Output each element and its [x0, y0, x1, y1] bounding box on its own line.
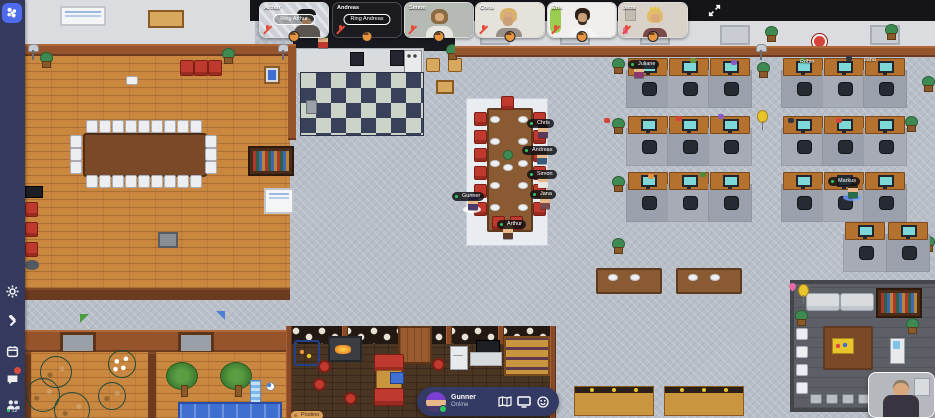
bunting — [680, 388, 684, 392]
office-chair — [724, 82, 739, 96]
self-name: Gunner — [451, 394, 493, 402]
video-tile-arthur[interactable]: Arthur Ring Arthur — [259, 2, 329, 38]
wall — [455, 46, 935, 57]
desk-monitor — [723, 175, 739, 187]
expand-call-view-icon[interactable] — [708, 4, 721, 17]
potted-plant — [612, 118, 624, 134]
person-face — [651, 14, 660, 22]
fireplace — [328, 336, 362, 362]
screenshare-icon[interactable] — [516, 395, 531, 409]
sofa — [806, 293, 840, 311]
fridge — [450, 346, 468, 370]
participant-name: Arthur — [264, 5, 281, 11]
build-hammer-icon[interactable] — [0, 310, 25, 332]
potted-plant — [40, 52, 52, 68]
stool — [826, 394, 838, 404]
desk-item — [648, 174, 654, 179]
meeting-chair — [474, 112, 487, 126]
office-chair — [724, 140, 739, 154]
direction-arrow — [80, 314, 89, 323]
office-chair — [642, 140, 657, 154]
office-chair — [683, 82, 698, 96]
whiteboard — [60, 6, 106, 26]
trash-can — [306, 100, 317, 114]
potted-plant — [612, 238, 624, 254]
conference-chair — [99, 175, 111, 188]
meeting-chair — [474, 130, 487, 144]
office-chair — [797, 196, 812, 210]
desk-monitor — [878, 119, 894, 131]
plate — [503, 164, 513, 171]
pixel-avatar-badge — [577, 31, 588, 42]
lounge-chair — [448, 58, 462, 72]
participant-name: Jana — [623, 5, 636, 11]
video-call-bar: Arthur Ring Arthur Andreas Ring Andreas … — [250, 0, 935, 40]
plate — [518, 138, 528, 145]
plate — [490, 138, 500, 145]
desk-monitor — [901, 225, 917, 237]
desk-monitor — [878, 61, 894, 73]
balloon — [757, 110, 768, 123]
bunting — [634, 388, 638, 392]
desk-monitor — [796, 175, 812, 187]
balloon — [798, 284, 809, 297]
bookshelf — [248, 146, 294, 176]
pixel-avatar-badge — [434, 31, 445, 42]
stool — [810, 394, 822, 404]
office-chair — [879, 140, 894, 154]
player-nametag: Juliane — [628, 60, 659, 69]
player-nametag: Andreas — [522, 146, 557, 155]
conference-chair — [205, 135, 217, 148]
mic-muted-icon — [408, 25, 417, 34]
booth-seat — [374, 388, 404, 406]
red-chair — [25, 202, 38, 217]
calendar-icon[interactable] — [0, 340, 25, 362]
plate — [630, 274, 640, 281]
conference-chair — [190, 120, 202, 133]
video-tile-erik[interactable]: Erik — [547, 2, 617, 38]
chair — [796, 346, 808, 358]
conference-chair — [164, 175, 176, 188]
bunting — [612, 388, 616, 392]
bunting — [702, 388, 706, 392]
desk-item — [700, 172, 706, 177]
plate — [710, 274, 720, 281]
office-chair — [859, 246, 874, 260]
conference-chair — [112, 175, 124, 188]
stove — [404, 50, 422, 74]
side-table — [436, 80, 454, 94]
gather-logo-icon — [4, 5, 20, 21]
projector — [158, 232, 178, 248]
wall-post — [286, 326, 292, 418]
bunting — [590, 388, 594, 392]
avatar-markus[interactable] — [848, 184, 858, 198]
online-dot — [7, 409, 10, 412]
board-game[interactable] — [832, 338, 854, 354]
table — [596, 268, 662, 294]
person-face — [435, 13, 444, 21]
floor-lamp — [756, 44, 766, 60]
chair — [796, 364, 808, 376]
direction-arrow — [216, 311, 225, 320]
desk-monitor — [682, 61, 698, 73]
mic-muted-icon — [551, 25, 560, 34]
conference-chair — [205, 148, 217, 161]
wall-shelf — [148, 10, 184, 28]
participant-name: Erik — [552, 5, 562, 11]
bar-stool — [432, 358, 445, 371]
kitchen-checkered-floor — [300, 72, 424, 136]
bar-stool — [344, 392, 357, 405]
player-nametag: Chris — [527, 119, 554, 128]
room-window — [914, 378, 930, 396]
conference-chair — [164, 120, 176, 133]
wall — [148, 352, 156, 418]
conference-chair — [125, 120, 137, 133]
meeting-chair — [474, 166, 487, 180]
emote-smiley-icon[interactable] — [535, 395, 550, 409]
tv-screen — [25, 186, 43, 198]
left-sidebar: 12 — [0, 0, 25, 418]
window — [60, 332, 96, 354]
desk-item — [690, 58, 696, 63]
plate — [688, 274, 698, 281]
conference-chair — [70, 135, 82, 148]
pixel-avatar-badge — [289, 31, 300, 42]
floor-lamp — [278, 44, 288, 60]
location-tag: Postino — [291, 411, 323, 418]
conference-chair — [125, 175, 137, 188]
office-chair — [797, 140, 812, 154]
tree — [98, 382, 126, 410]
office-chair — [642, 196, 657, 210]
desk-item — [604, 118, 610, 123]
person-body — [883, 395, 919, 417]
mic-muted-icon — [336, 25, 345, 34]
potted-plant — [922, 76, 934, 92]
red-chair — [180, 60, 194, 76]
desk-item — [846, 56, 852, 61]
conference-chair — [138, 120, 150, 133]
pixel-avatar-badge — [505, 31, 516, 42]
floor-lamp — [28, 44, 38, 60]
self-identity[interactable]: Gunner Online — [451, 394, 493, 408]
meeting-chair — [474, 148, 487, 162]
water-cooler — [890, 338, 905, 364]
minimap-icon[interactable] — [497, 395, 512, 409]
conference-chair — [86, 120, 98, 133]
player-nametag: Markus — [828, 177, 860, 186]
blue-chest — [390, 372, 404, 384]
chat-notification-badge — [13, 366, 22, 375]
desk-monitor — [682, 119, 698, 131]
person-hand — [503, 17, 513, 26]
office-map[interactable]: Chris Andreas Simon Jana Gunner Arthur J… — [0, 0, 935, 418]
plate — [490, 204, 500, 211]
player-nametag: Gunner — [452, 192, 484, 201]
office-chair — [838, 82, 853, 96]
potted-plant — [757, 62, 769, 78]
video-tile-chris[interactable]: Chris — [475, 2, 545, 38]
ring-andreas-button[interactable]: Ring Andreas — [343, 14, 390, 25]
red-chair — [194, 60, 208, 76]
desk-item — [836, 118, 842, 123]
red-chair — [208, 60, 222, 76]
wall — [25, 44, 290, 56]
chair — [796, 382, 808, 394]
office-chair — [879, 82, 894, 96]
conference-chair — [151, 120, 163, 133]
sofa — [840, 293, 874, 311]
desk-monitor — [878, 175, 894, 187]
participant-name: Simon — [409, 5, 426, 11]
self-avatar[interactable] — [426, 392, 446, 412]
pixel-avatar-badge — [648, 31, 659, 42]
conference-chair — [177, 175, 189, 188]
conference-chair — [205, 161, 217, 174]
video-tile-simon[interactable]: Simon — [404, 2, 474, 38]
conference-chair — [99, 120, 111, 133]
wall — [25, 288, 290, 300]
table — [676, 268, 742, 294]
stool — [842, 394, 854, 404]
desk-item — [731, 60, 737, 65]
office-chair — [683, 196, 698, 210]
office-chair — [879, 196, 894, 210]
person-face — [578, 13, 587, 22]
self-video-preview[interactable] — [868, 372, 935, 418]
player-nametag: Jana — [530, 190, 556, 199]
table-plant — [503, 150, 513, 160]
conference-chair — [190, 175, 202, 188]
potted-plant — [612, 176, 624, 192]
bar-stool — [318, 360, 331, 373]
pixel-avatar-badge — [362, 31, 373, 42]
plate — [608, 274, 618, 281]
gather-logo[interactable] — [2, 3, 22, 23]
bunting — [724, 388, 728, 392]
laptop — [126, 76, 138, 85]
plate — [490, 182, 500, 189]
plate — [490, 160, 500, 167]
chair — [796, 328, 808, 340]
party-crown — [650, 6, 660, 10]
conference-table — [83, 133, 207, 177]
lounge-chair — [426, 58, 440, 72]
chat-icon[interactable] — [0, 368, 25, 390]
desk-monitor — [641, 119, 657, 131]
desk-nameplate: Jana — [864, 57, 876, 63]
participant-name: Andreas — [337, 5, 359, 11]
armchair — [25, 260, 39, 270]
gather-app-window: Chris Andreas Simon Jana Gunner Arthur J… — [0, 0, 935, 418]
wall-post — [446, 326, 452, 344]
mic-muted-icon — [263, 25, 272, 34]
desk-item — [718, 114, 724, 119]
office-chair — [642, 82, 657, 96]
office-chair — [902, 246, 917, 260]
bar-stool — [313, 378, 326, 391]
microwave — [390, 50, 404, 66]
palm-tree — [166, 362, 198, 390]
potted-plant — [222, 48, 234, 64]
flower-bush — [108, 350, 136, 378]
office-chair — [724, 196, 739, 210]
desk-monitor — [796, 119, 812, 131]
desk-nameplate: Robin — [800, 59, 814, 65]
video-tile-jana[interactable]: Jana — [618, 2, 688, 38]
beach-ball — [266, 382, 275, 391]
desk-item — [676, 116, 682, 121]
player-nametag: Simon — [527, 170, 557, 179]
whiteboard[interactable] — [264, 188, 294, 214]
desk-item — [788, 118, 794, 123]
plate — [518, 182, 528, 189]
plate — [490, 116, 500, 123]
mic-muted-icon — [479, 25, 488, 34]
video-tile-andreas[interactable]: Andreas Ring Andreas — [332, 2, 402, 38]
window — [178, 332, 214, 354]
conference-chair — [112, 120, 124, 133]
wall-picture — [264, 66, 280, 84]
potted-plant — [906, 318, 918, 334]
wall — [288, 44, 296, 140]
mic-muted-icon — [622, 25, 631, 34]
self-status: Online — [451, 402, 493, 409]
desk-monitor — [723, 119, 739, 131]
office-chair — [797, 82, 812, 96]
desk-monitor — [682, 175, 698, 187]
conference-chair — [86, 175, 98, 188]
office-chair — [838, 140, 853, 154]
palm-tree — [220, 362, 252, 390]
conference-chair — [138, 175, 150, 188]
office-chair — [683, 140, 698, 154]
bookshelf — [876, 288, 922, 318]
red-chair — [25, 242, 38, 257]
desk-monitor — [858, 225, 874, 237]
bottom-control-bar: Gunner Online — [417, 387, 559, 416]
ring-arthur-button[interactable]: Ring Arthur — [273, 14, 315, 25]
plate — [518, 204, 528, 211]
pool — [178, 402, 282, 418]
beach-towel — [250, 380, 261, 404]
participant-name: Chris — [480, 5, 494, 11]
potted-plant — [612, 58, 624, 74]
conference-chair — [70, 161, 82, 174]
aquarium — [294, 340, 320, 366]
meeting-chair — [501, 96, 514, 110]
bar-counter — [470, 352, 502, 366]
settings-icon[interactable] — [0, 280, 25, 302]
conference-chair — [151, 175, 163, 188]
members-count: 12 — [0, 408, 25, 414]
red-chair — [25, 222, 38, 237]
conference-chair — [70, 148, 82, 161]
plate — [518, 160, 528, 167]
potted-plant — [795, 310, 807, 326]
wine-shelf — [504, 336, 550, 376]
coffee-machine — [350, 52, 364, 66]
player-nametag: Arthur — [497, 220, 526, 229]
desk-monitor — [837, 61, 853, 73]
conference-chair — [177, 120, 189, 133]
